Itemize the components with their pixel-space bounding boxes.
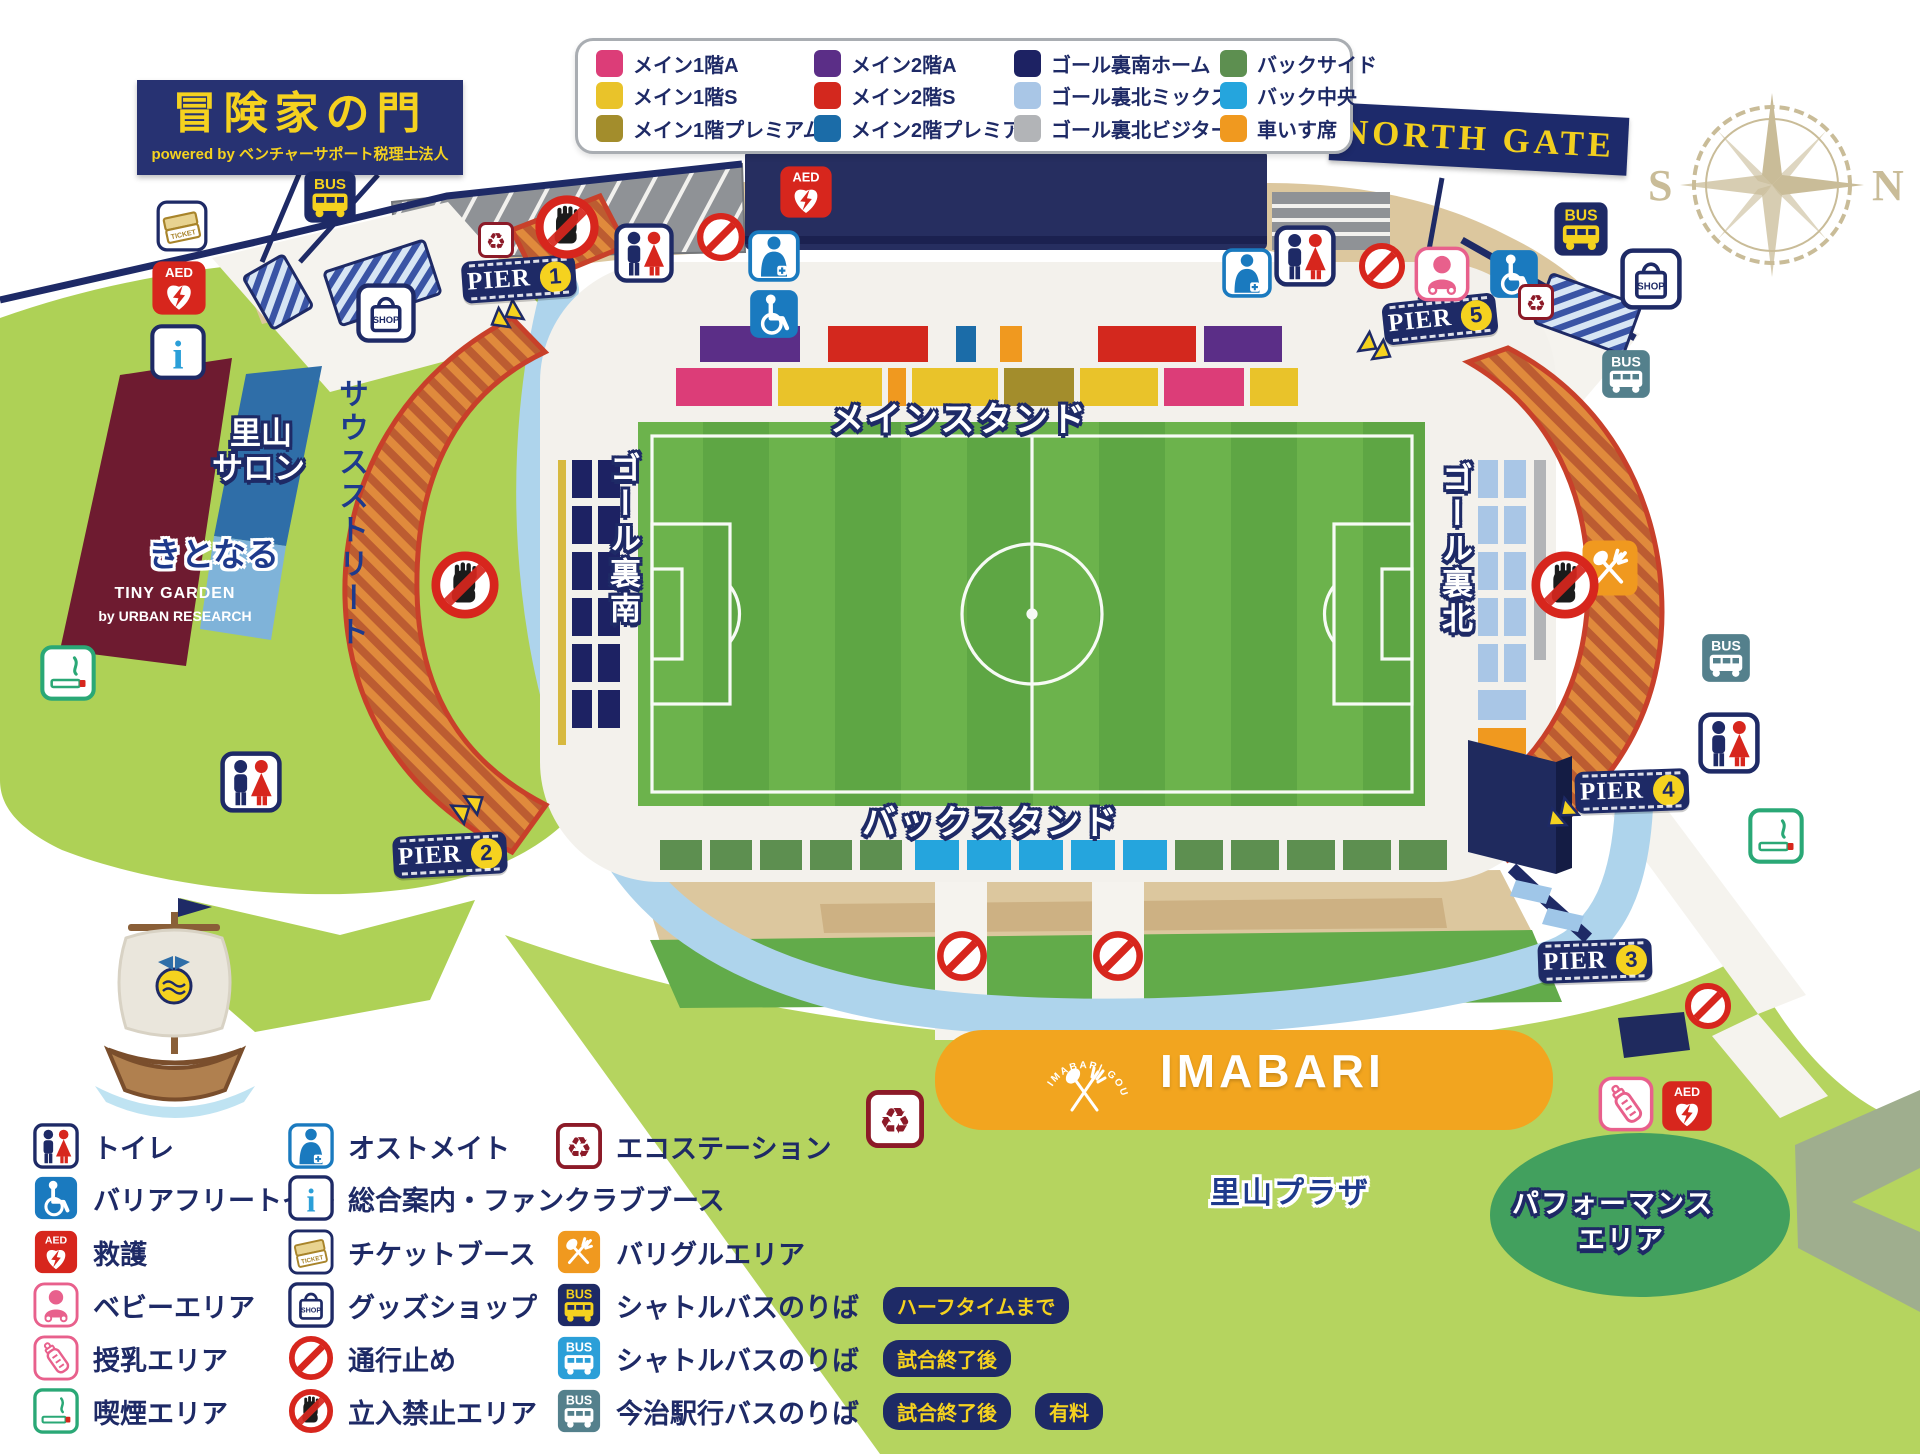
goods-shop-icon xyxy=(1620,246,1682,312)
imabari-sta-bus-icon xyxy=(556,1388,602,1434)
toilet-icon xyxy=(614,222,674,284)
no-entry-icon xyxy=(1684,982,1732,1030)
eco-station-icon xyxy=(866,1090,924,1148)
barrier-free-toilet-icon xyxy=(33,1175,79,1221)
pier-4-sign: PIER 4 xyxy=(1574,768,1689,814)
info-icon xyxy=(150,324,206,380)
imabari-sta-bus-icon xyxy=(1700,630,1752,686)
first-aid-aed-icon xyxy=(1660,1076,1714,1136)
legend-row-ostomate: オストメイト xyxy=(288,1122,510,1170)
legend-item: ゴール裏南ホーム xyxy=(1014,49,1220,78)
ostomate-icon xyxy=(748,230,800,282)
legend-item: バック中央 xyxy=(1220,81,1377,110)
legend-item: 車いす席 xyxy=(1220,114,1377,143)
no-entry-icon xyxy=(1092,930,1144,982)
after-game-badge: 試合終了後 xyxy=(883,1393,1011,1430)
eco-station-icon xyxy=(1518,284,1554,320)
legend-row-info: 総合案内・ファンクラブブース xyxy=(288,1174,725,1222)
barrier-free-toilet-icon xyxy=(748,288,800,340)
paid-badge: 有料 xyxy=(1035,1393,1103,1430)
legend-item: メイン2階A xyxy=(814,49,1014,78)
tiny-garden-label-1: TINY GARDEN xyxy=(75,585,275,603)
swatch-back-center xyxy=(1220,82,1247,109)
south-street-label: サウスストリート xyxy=(328,378,372,650)
kitonaru-label: きとなる xyxy=(148,528,279,576)
legend-item: メイン2階S xyxy=(814,81,1014,110)
swatch-goal-north-visitor xyxy=(1014,115,1041,142)
legend-row-toilet: トイレ xyxy=(33,1122,174,1170)
swatch-main2f-s xyxy=(814,82,841,109)
goods-shop-icon xyxy=(288,1282,334,1328)
performance-area-label-1: パフォーマンス xyxy=(1512,1182,1714,1221)
ticket-booth-icon xyxy=(288,1229,334,1275)
shuttle-bus-yellow-icon xyxy=(302,168,358,226)
swatch-main1f-s xyxy=(596,82,623,109)
legend-item: ゴール裏北ミックス xyxy=(1014,81,1220,110)
shuttle-bus-yellow-icon xyxy=(1552,198,1610,260)
bariguru-icon xyxy=(556,1229,602,1275)
baby-area-icon xyxy=(33,1282,79,1328)
north-gate-label: NORTH GATE xyxy=(1342,112,1616,166)
legend-row-imabari-sta-bus: 今治駅行バスのりば 試合終了後 有料 xyxy=(556,1387,1103,1435)
no-entry-icon xyxy=(936,930,988,982)
legend-row-goods-shop: グッズショップ xyxy=(288,1281,537,1329)
swatch-main2f-a xyxy=(814,50,841,77)
toilet-icon xyxy=(33,1123,79,1169)
keep-out-icon xyxy=(1530,550,1600,620)
legend-row-eco-station: エコステーション xyxy=(556,1122,831,1170)
after-game-badge: 試合終了後 xyxy=(883,1340,1011,1377)
ticket-booth-icon xyxy=(150,200,214,252)
adventurer-gate-banner: 冒険家の門 powered by ベンチャーサポート税理士法人 xyxy=(137,80,463,175)
toilet-icon xyxy=(1274,224,1336,288)
toilet-icon xyxy=(1698,710,1760,776)
nursing-icon xyxy=(1598,1074,1654,1134)
first-aid-aed-icon xyxy=(150,258,208,318)
imabari-label: IMABARI xyxy=(1160,1044,1385,1098)
pier-1-sign: PIER 1 xyxy=(461,254,578,304)
legend-row-first-aid: 救護 xyxy=(33,1228,147,1276)
first-aid-aed-icon xyxy=(778,162,834,222)
seats-back-stand xyxy=(660,840,1447,870)
shuttle-bus-blue-icon xyxy=(556,1335,602,1381)
legend-row-bariguru: バリグルエリア xyxy=(556,1228,805,1276)
pitch xyxy=(638,422,1425,806)
goods-shop-icon xyxy=(356,282,416,344)
legend-item: ゴール裏北ビジター xyxy=(1014,114,1220,143)
adventurer-gate-subtitle: powered by ベンチャーサポート税理士法人 xyxy=(151,143,448,164)
compass-south-label: S xyxy=(1648,160,1672,211)
nursing-icon xyxy=(33,1335,79,1381)
pier-3-sign: PIER 3 xyxy=(1537,938,1652,984)
toilet-icon xyxy=(220,748,282,816)
swatch-main1f-a xyxy=(596,50,623,77)
swatch-back-side xyxy=(1220,50,1247,77)
legend-item: メイン1階S xyxy=(596,81,814,110)
smoking-icon xyxy=(1748,806,1804,866)
shuttle-bus-yellow-icon xyxy=(556,1282,602,1328)
info-icon xyxy=(288,1175,334,1221)
ship-illustration xyxy=(70,890,280,1125)
smoking-icon xyxy=(40,642,96,704)
keep-out-icon xyxy=(430,550,500,620)
halftime-badge: ハーフタイムまで xyxy=(883,1287,1069,1324)
adventurer-gate-title: 冒険家の門 xyxy=(173,92,428,136)
legend-item: メイン2階プレミアム xyxy=(814,114,1014,143)
main-stand-label: メインスタンド xyxy=(830,392,1088,441)
eco-station-icon xyxy=(478,222,514,258)
compass-north-label: N xyxy=(1872,160,1904,211)
smoking-icon xyxy=(33,1388,79,1434)
pier-2-sign: PIER 2 xyxy=(392,831,508,879)
no-entry-icon xyxy=(288,1335,334,1381)
tiny-garden-label-2: by URBAN RESEARCH xyxy=(75,608,275,624)
imabari-gourmet-logo: IMABARI GOURMET xyxy=(1035,1036,1135,1126)
legend-item: バックサイド xyxy=(1220,49,1377,78)
swatch-main1f-premium xyxy=(596,115,623,142)
ostomate-icon xyxy=(1222,248,1272,298)
satoyama-plaza-label: 里山プラザ xyxy=(1210,1168,1370,1212)
legend-row-shuttle-bus-halftime: シャトルバスのりば ハーフタイムまで xyxy=(556,1281,1069,1329)
legend-row-baby-area: ベビーエリア xyxy=(33,1281,255,1329)
first-aid-aed-icon xyxy=(33,1229,79,1275)
ostomate-icon xyxy=(288,1123,334,1169)
swatch-goal-north-mix xyxy=(1014,82,1041,109)
goal-south-label: ゴール裏南 xyxy=(600,452,645,627)
satoyama-salon-label-2: サロン xyxy=(212,443,305,488)
performance-area-label-2: エリア xyxy=(1578,1218,1665,1257)
no-entry-icon xyxy=(1358,242,1406,290)
back-stand-label: バックスタンド xyxy=(862,795,1120,844)
swatch-goal-south-home xyxy=(1014,50,1041,77)
shuttle-bus-blue-icon xyxy=(1600,346,1652,402)
legend-row-smoking: 喫煙エリア xyxy=(33,1387,228,1435)
legend-item: メイン1階A xyxy=(596,49,814,78)
seat-category-legend: メイン1階A メイン2階A ゴール裏南ホーム バックサイド メイン1階S メイン… xyxy=(575,38,1353,154)
keep-out-icon xyxy=(288,1388,334,1434)
legend-row-keep-out: 立入禁止エリア xyxy=(288,1387,537,1435)
performance-flag-shape xyxy=(1618,1012,1690,1058)
eco-station-icon xyxy=(556,1123,602,1169)
legend-item: メイン1階プレミアム xyxy=(596,114,814,143)
stadium-map-page: { "banner": {"title": "冒険家の門", "subtitle… xyxy=(0,0,1920,1454)
no-entry-icon xyxy=(696,212,746,262)
goal-north-label: ゴール裏北 xyxy=(1432,462,1477,637)
legend-row-no-entry: 通行止め xyxy=(288,1334,456,1382)
swatch-main2f-premium xyxy=(814,115,841,142)
baby-area-icon xyxy=(1413,246,1471,302)
keep-out-icon xyxy=(534,194,600,260)
legend-row-shuttle-bus-after: シャトルバスのりば 試合終了後 xyxy=(556,1334,1011,1382)
legend-row-ticket-booth: チケットブース xyxy=(288,1228,536,1276)
legend-row-nursing: 授乳エリア xyxy=(33,1334,228,1382)
swatch-wheelchair-seat xyxy=(1220,115,1247,142)
